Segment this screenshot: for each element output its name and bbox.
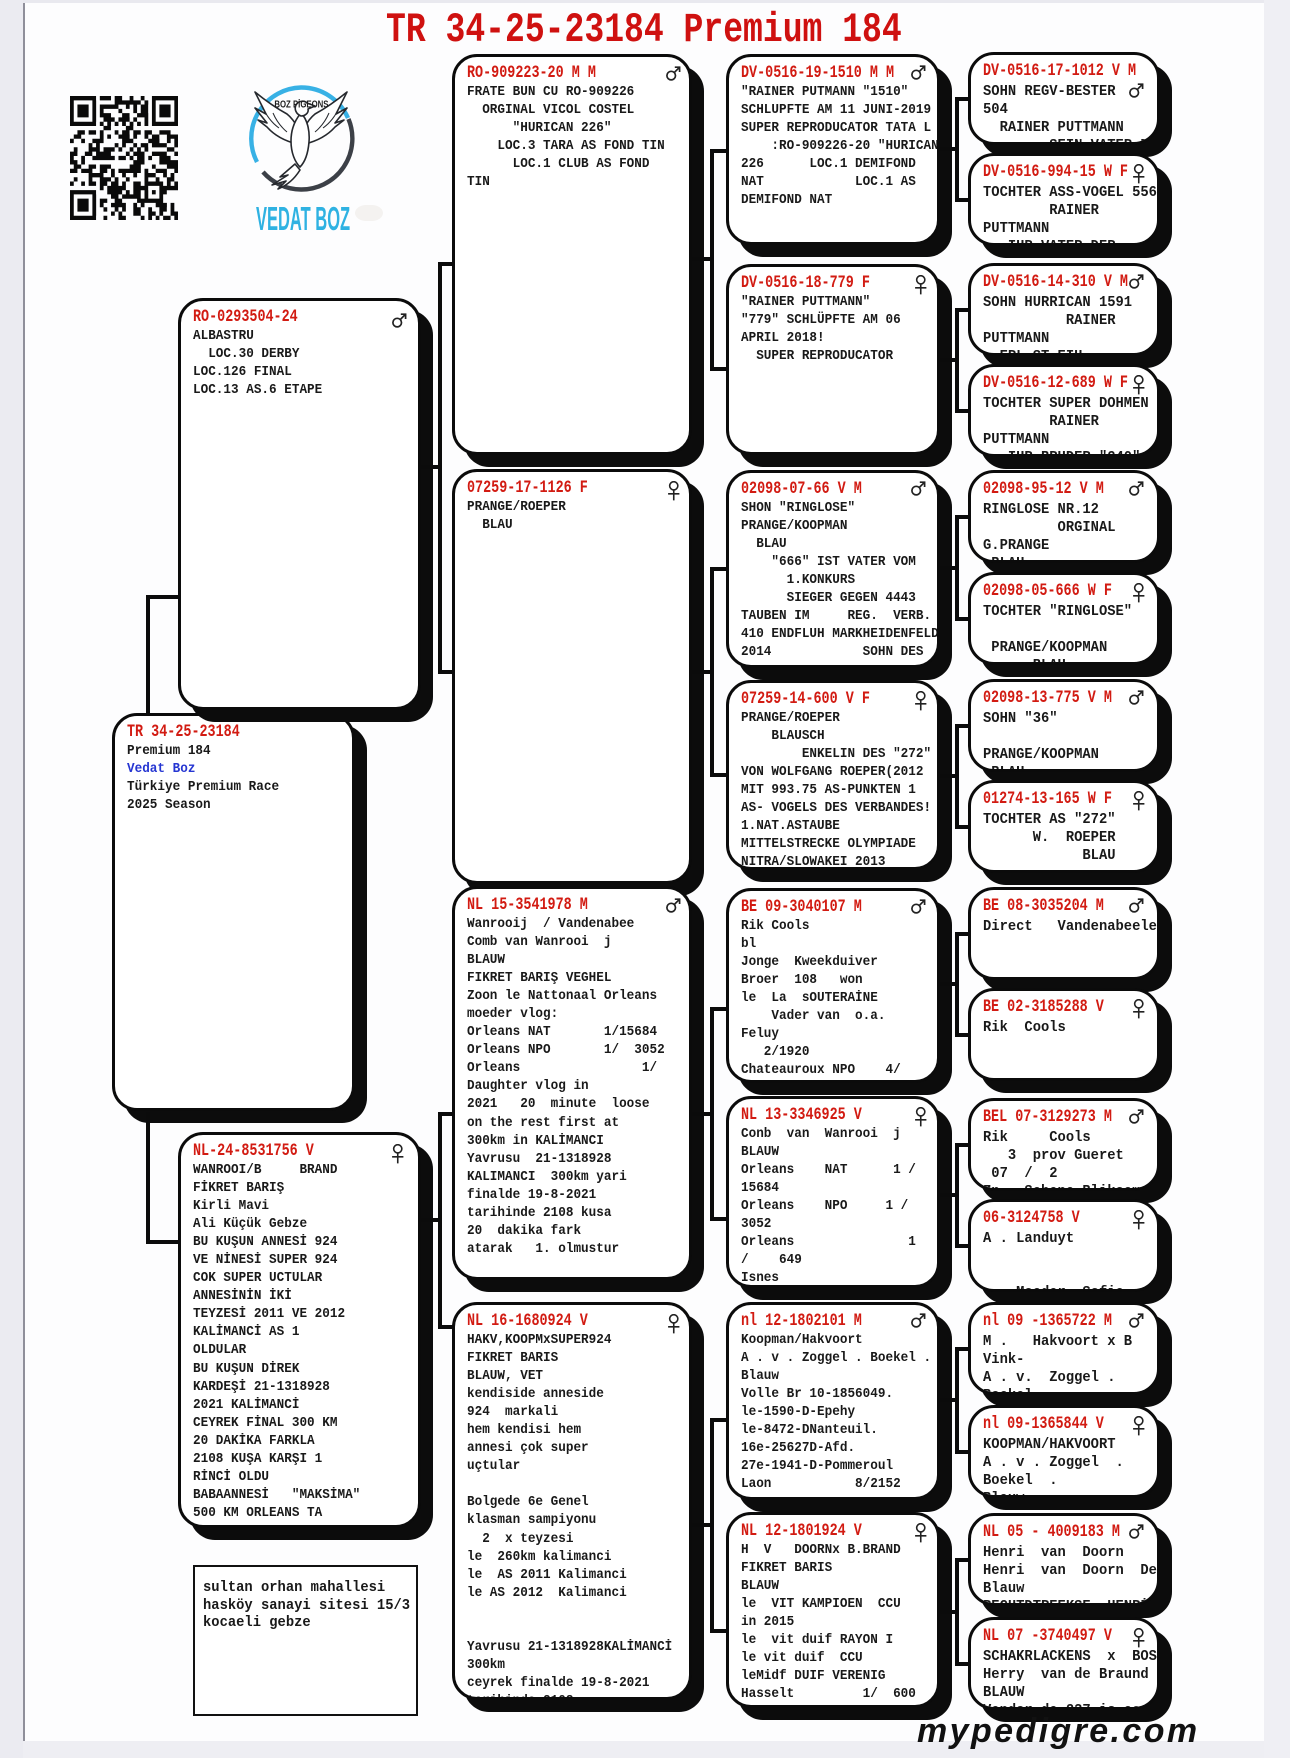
svg-text:BOZ PİGEONS: BOZ PİGEONS bbox=[274, 99, 328, 110]
